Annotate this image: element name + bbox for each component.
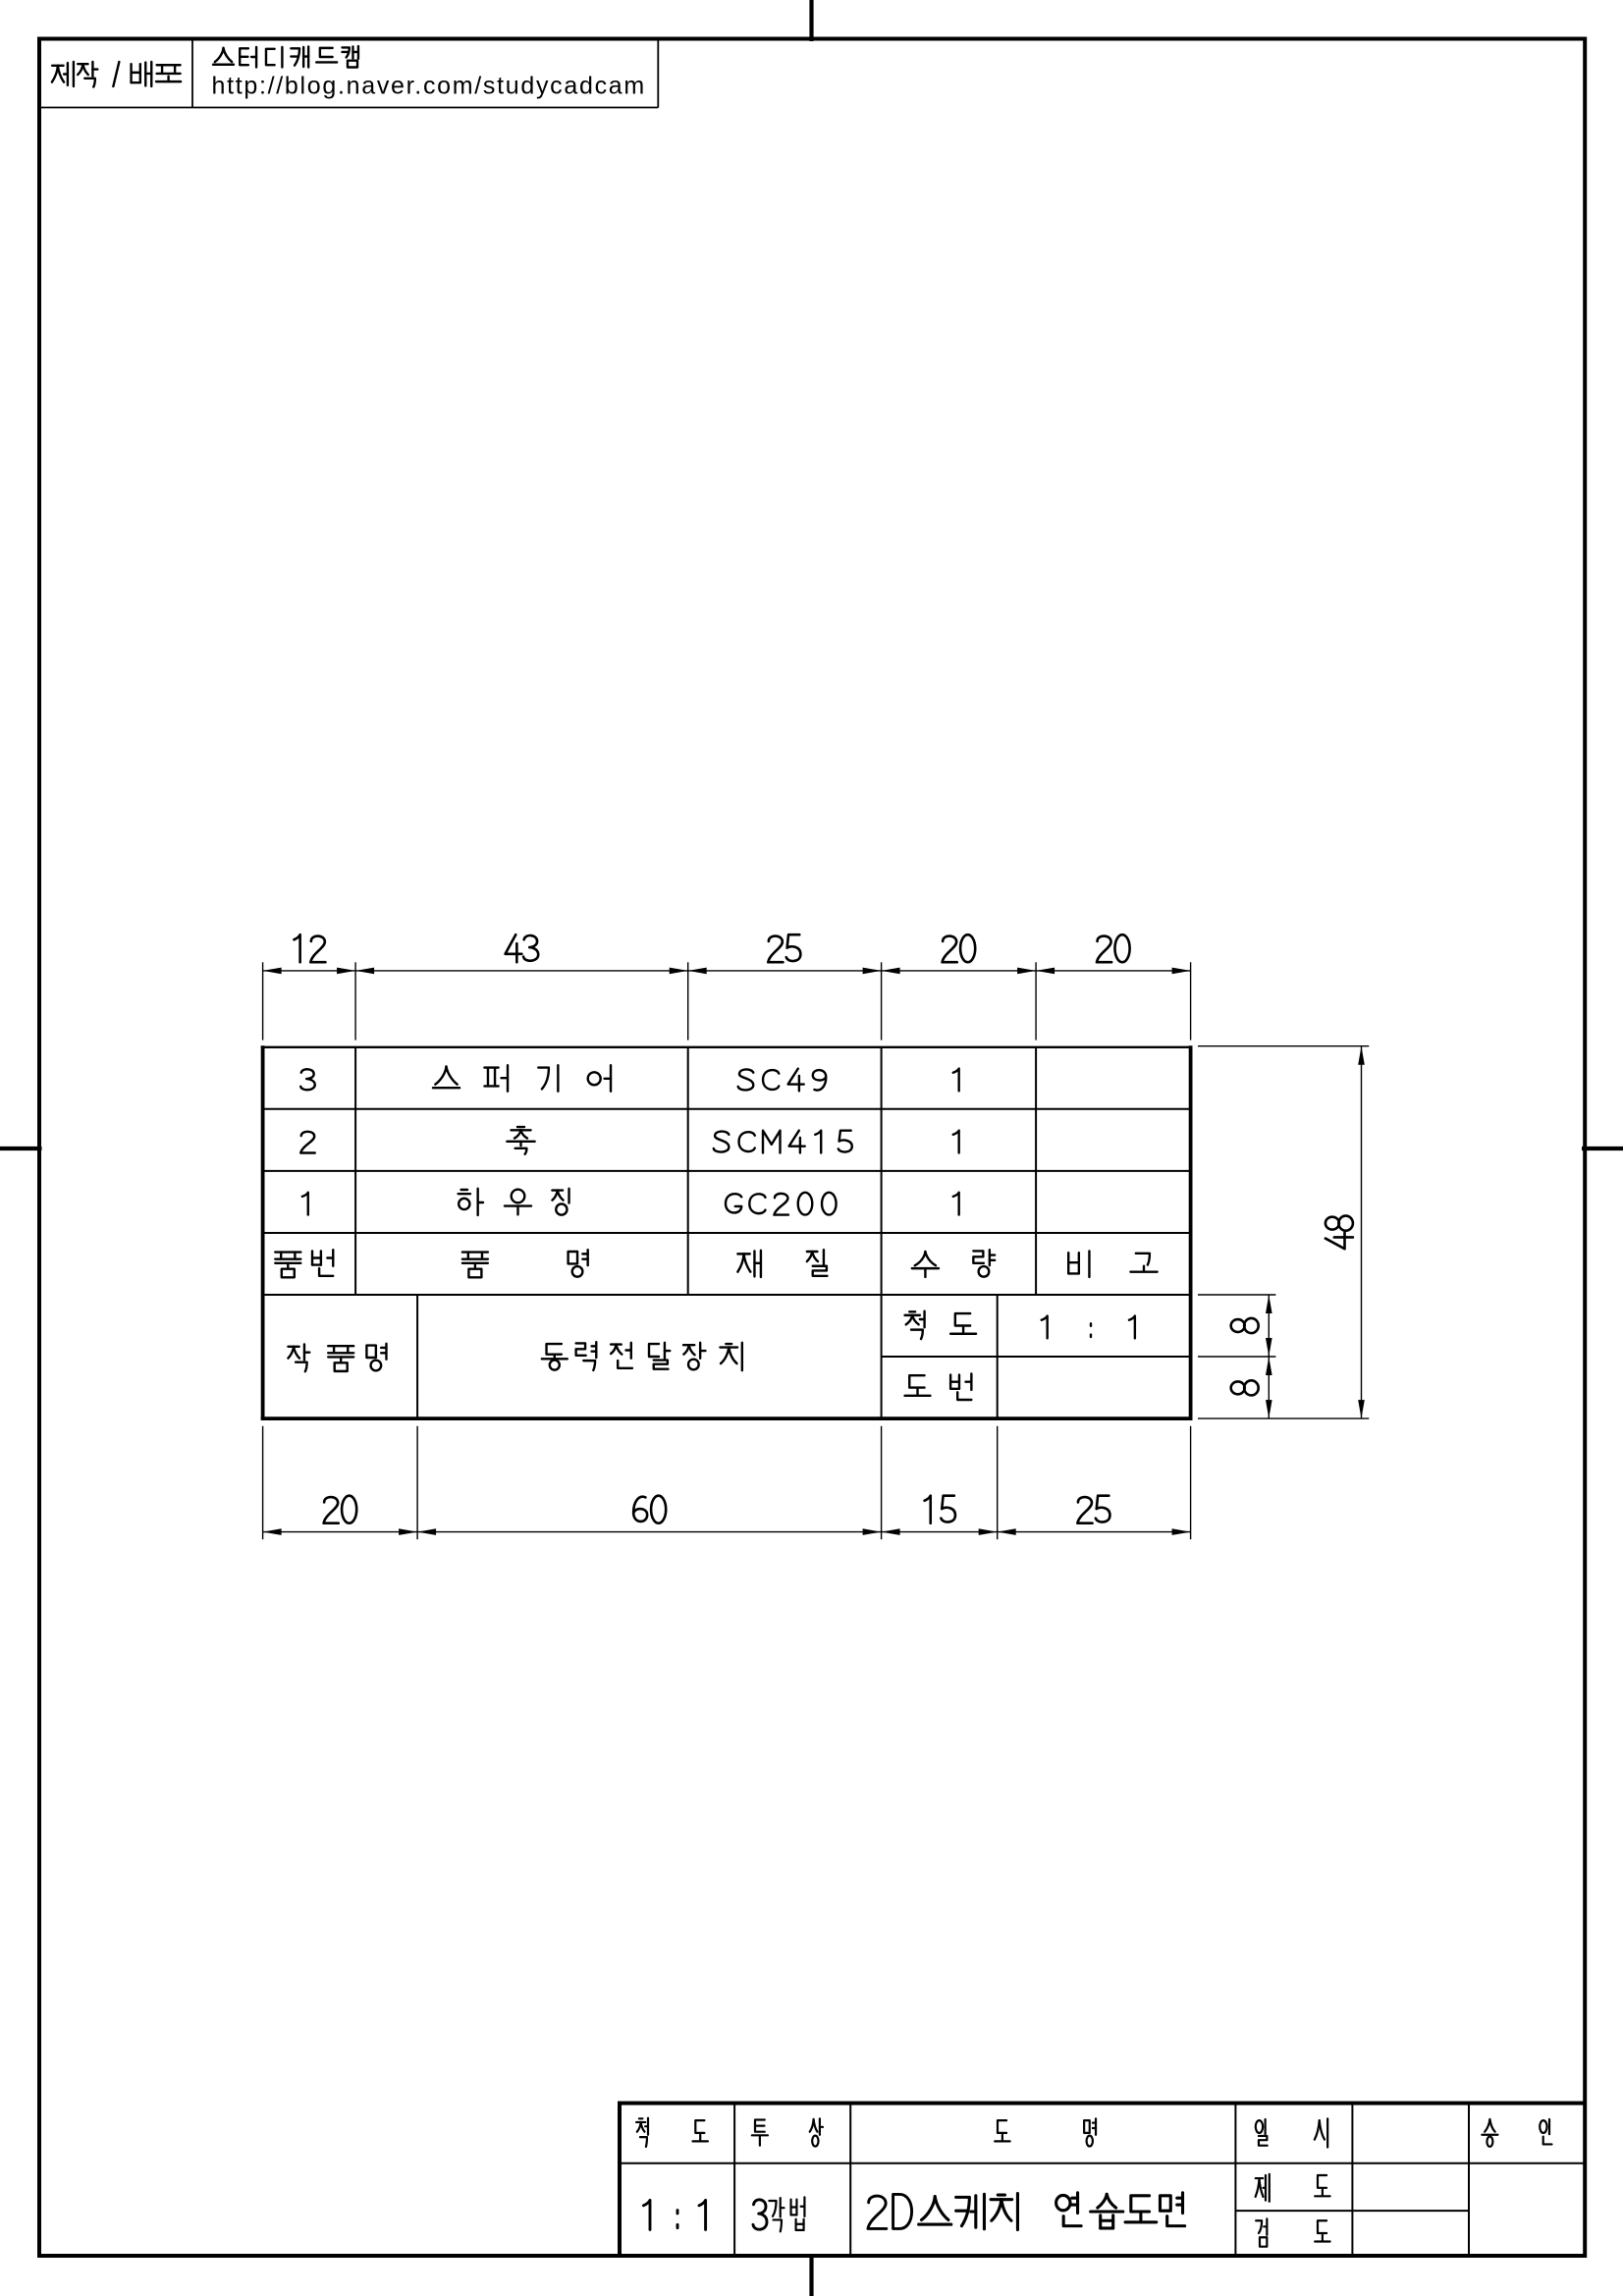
svg-text:http://blog.naver.com/studycad: http://blog.naver.com/studycadcam [212,73,646,100]
